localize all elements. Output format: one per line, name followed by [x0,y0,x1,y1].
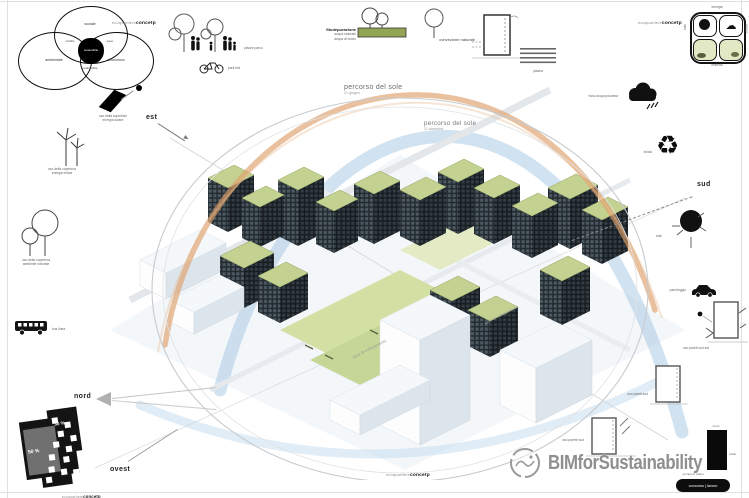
venn-label-equitable: equo [98,39,122,43]
sun-path-date: 21 giugno [344,91,402,95]
concept-caption-bold: concetp [83,494,100,498]
venn-label-environment: ambientale [34,58,74,62]
matrix-cell-sun [693,15,717,37]
plan-unit [66,446,73,453]
grid-label-sole: sole [683,24,687,30]
park-label: piazze parco [244,46,278,50]
watermark: BIMforSustainability [506,444,731,482]
concept-matrix: ☁ [690,12,746,64]
bicycle-icon [198,58,226,74]
compass-nord: nord [74,393,91,400]
site-plan: 30 % 50 % [7,405,101,496]
solar-label-line2: energia solare [84,118,142,122]
concept-caption-topleft: ecoquartiereconcetp [112,11,156,29]
concept-caption-bold: concetp [136,21,156,26]
landscape-blob [697,53,706,58]
solar-label: uso della superficie energia solare [84,114,142,123]
phytodepuration-sub2: acqua di riciclo [316,37,356,41]
phytodepuration-label: fitodepurazione acqua naturale acqua di … [316,27,356,41]
sun-path-title: percorso del sole [344,84,402,91]
monolith-top-label: muro [703,424,729,428]
sun-dot-icon [699,19,710,30]
plan-unit [73,469,80,476]
compass-sud: sud [697,181,711,188]
bus-icon [14,318,50,336]
wall-section-sud-icon [650,364,688,410]
recycle-label: ricicla [620,150,652,154]
natural-convection-icon [472,12,522,60]
tree-label: uso della copertura ambiente naturale [6,258,66,267]
plan-unit [48,466,55,473]
concept-board: asse di collegamento asse di collegament… [0,0,749,498]
plan-unit [63,456,70,463]
plan-unit [61,468,68,475]
grid-label-energy: energia [692,5,742,9]
car-icon [690,282,718,298]
people-silhouettes [191,36,236,51]
wind-label: uso della copertura energia eolica [32,167,92,176]
concept-caption-bottom: ecoquartiereconcetp [386,463,430,481]
sun-path-label-winter: percorso del sole 21 dicembre [424,120,476,131]
tree-label-line2: ambiente naturale [6,262,66,266]
venn-label-sustainable: sostenibile [76,48,106,52]
frame-top-line [0,1,749,2]
venn-label-viable: realizzabile [68,66,112,70]
matrix-cell-ground-right [719,39,743,61]
wind-label-line2: energia eolica [32,171,92,175]
park-trees-people-icon [168,12,240,58]
concept-caption-prefix: ecoquartiere [638,20,662,25]
slab-layers-icon [520,48,556,68]
venn-label-social: sociale [72,22,108,26]
matrix-cell-water: ☁ [719,15,743,37]
concept-caption-prefix: ecoquartiere [386,472,410,477]
bike-label: park bici [228,66,254,70]
plan-unit [70,435,77,442]
sun-icon [664,204,714,254]
sun-label: sole [648,234,662,238]
rain-label: riuso acqua piovana [576,94,618,98]
wall-section-sud-est-icon [694,298,748,346]
matrix-cell-ground-left [693,39,717,61]
sun-dot-icon [136,85,142,91]
concept-caption-bold: concetp [410,473,430,478]
venn-label-economy: economico [96,58,136,62]
plan-unit [46,477,53,484]
landscape-blob [731,52,739,57]
wall-sud-est-label: uso pareti sud est [664,346,728,350]
compass-est: est [146,114,157,121]
concept-caption-topright: ecoquartiereconcetp [638,11,682,29]
sun-path-title: percorso del sole [424,120,476,127]
wind-turbines-icon [44,124,88,168]
slab-label: piastra [522,69,554,73]
rain-cloud-icon [620,80,666,110]
recycle-icon: ♻ [656,132,679,158]
cloud-icon: ☁ [726,20,737,32]
frame-right-line [741,0,742,498]
plan-unit [57,431,64,438]
tree-icon-top [418,8,450,40]
parking-label: parcheggio [652,288,686,292]
concept-caption-prefix: ecoquartiere [112,20,136,25]
compass-ovest: ovest [110,466,130,473]
tree-icon-left [18,208,66,258]
sun-path-label-summer: percorso del sole 21 giugno [344,84,402,95]
phytodepuration-icon [356,6,410,40]
venn-label-livable: vivibile [58,39,82,43]
watermark-logo-icon [506,444,544,482]
bus-label: bus linea [52,327,82,331]
watermark-text: BIMforSustainability [548,452,702,475]
convection-label: convezione naturale [425,37,475,42]
grid-label-acqua: acqua [744,24,748,33]
wall-sud-label: uso pareti sud [612,392,648,396]
plan-unit [49,454,56,461]
concept-caption-bold: concetp [662,21,682,26]
grid-label-matter: materia [692,63,742,67]
sun-path-date: 21 dicembre [424,127,476,131]
monolith-side-label: caldo [729,452,747,456]
nord-arrowhead [96,392,111,406]
frame-bottom-line [0,492,749,493]
wall-ovest-label: uso parete sud [548,438,584,442]
